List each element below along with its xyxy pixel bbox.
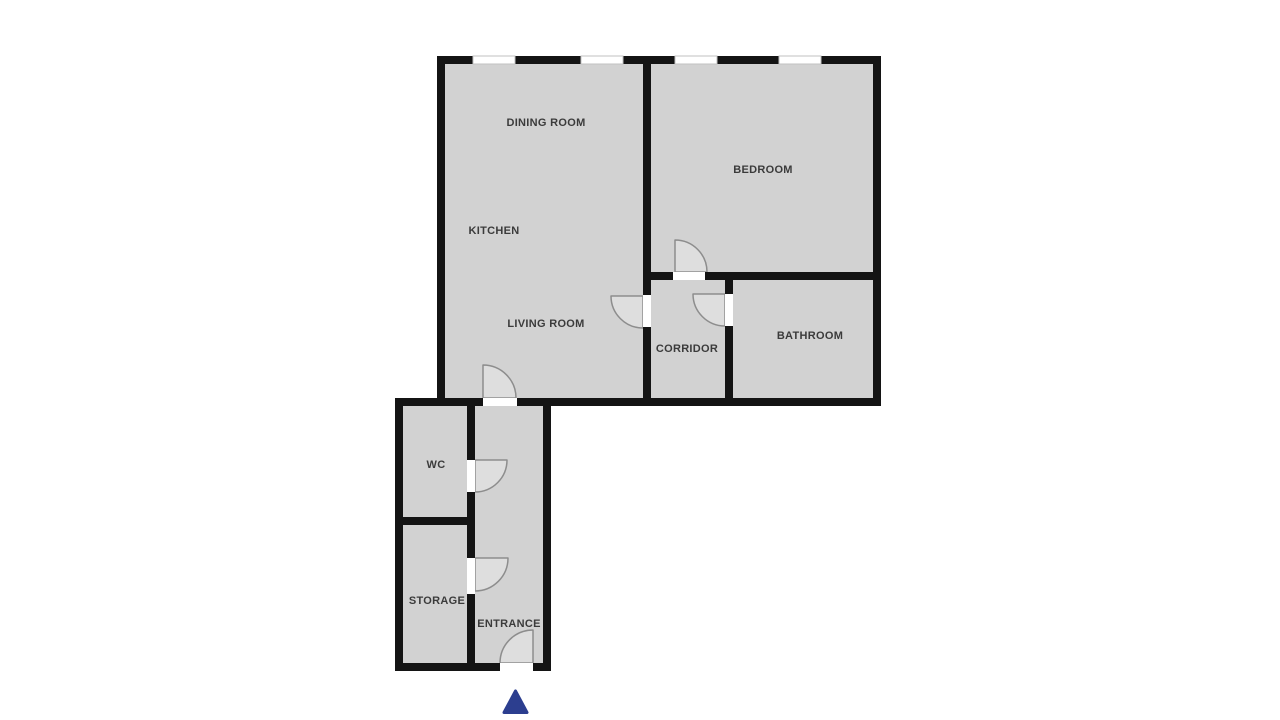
room-label-dining-room: DINING ROOM [506, 117, 585, 129]
wall-corridor-bathroom-lower [725, 326, 733, 406]
room-label-corridor: CORRIDOR [656, 343, 718, 355]
room-label-bathroom: BATHROOM [777, 330, 843, 342]
storage-door-opening [467, 558, 475, 594]
window-icon-2 [581, 56, 623, 64]
wall-right-exterior [873, 56, 881, 406]
wall-storage-hall-lower [467, 594, 475, 671]
window-icon-3 [675, 56, 717, 64]
wall-dining-bedroom-divider [643, 56, 651, 295]
room-label-living-room: LIVING ROOM [507, 318, 584, 330]
floorplan-canvas: DINING ROOM KITCHEN BEDROOM LIVING ROOM … [0, 0, 1280, 720]
wall-left-exterior [437, 56, 445, 406]
wall-annex-left [395, 398, 403, 671]
wall-annex-right [543, 398, 551, 671]
wall-wc-hall-upper [467, 398, 475, 460]
wall-bedroom-bottom-left [643, 272, 673, 280]
entrance-direction-triangle-icon [504, 691, 527, 713]
floorplan-drawing: DINING ROOM KITCHEN BEDROOM LIVING ROOM … [0, 0, 1280, 720]
room-label-wc: WC [427, 459, 446, 471]
room-label-entrance: ENTRANCE [477, 618, 541, 630]
wall-wc-storage-divider [395, 517, 475, 525]
room-label-bedroom: BEDROOM [733, 164, 793, 176]
bedroom-door-opening [673, 272, 705, 280]
wall-living-corridor-lower [643, 327, 651, 406]
window-icon-4 [779, 56, 821, 64]
living-room-corridor-door-opening [643, 295, 651, 327]
living-room-entrance-hall-door-opening [483, 398, 517, 406]
wall-corridor-bathroom-upper [725, 272, 733, 294]
entrance-door-opening [500, 663, 533, 671]
bathroom-door-opening [725, 294, 733, 326]
wc-door-opening [467, 460, 475, 492]
window-icon-1 [473, 56, 515, 64]
room-label-kitchen: KITCHEN [469, 225, 520, 237]
room-label-storage: STORAGE [409, 595, 465, 607]
